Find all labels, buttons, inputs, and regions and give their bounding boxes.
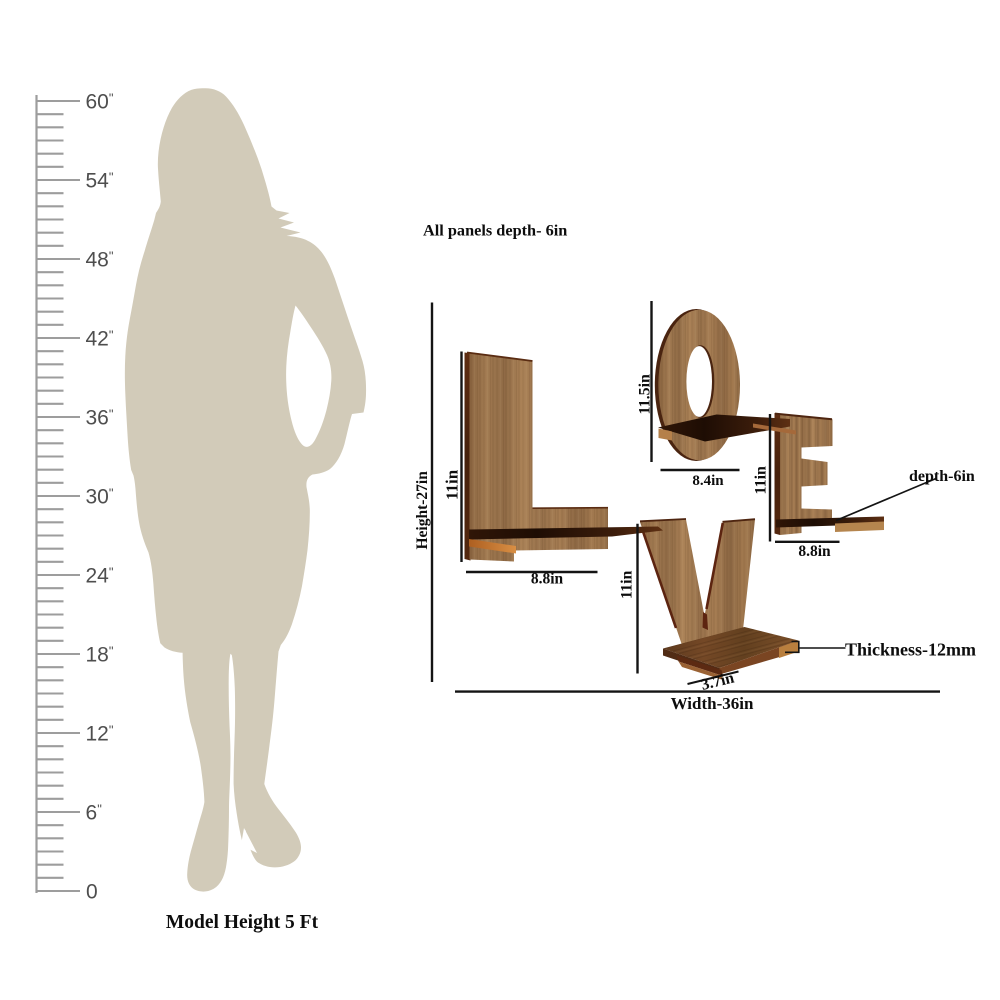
svg-text:Model Height 5 Ft: Model Height 5 Ft bbox=[166, 912, 319, 933]
svg-text:11in: 11in bbox=[443, 469, 462, 500]
svg-text:0: 0 bbox=[86, 881, 98, 904]
svg-text:Thickness-12mm: Thickness-12mm bbox=[845, 640, 976, 660]
svg-text:depth-6in: depth-6in bbox=[909, 468, 975, 485]
svg-text:Height-27in: Height-27in bbox=[414, 471, 431, 550]
svg-text:11.5in: 11.5in bbox=[637, 374, 654, 415]
svg-text:11in: 11in bbox=[619, 570, 636, 599]
svg-text:11in: 11in bbox=[753, 466, 770, 495]
svg-text:8.8in: 8.8in bbox=[531, 571, 564, 588]
svg-text:Width-36in: Width-36in bbox=[671, 694, 754, 713]
svg-text:8.4in: 8.4in bbox=[692, 473, 724, 489]
svg-text:8.8in: 8.8in bbox=[798, 543, 831, 560]
svg-text:All panels depth- 6in: All panels depth- 6in bbox=[423, 221, 567, 240]
